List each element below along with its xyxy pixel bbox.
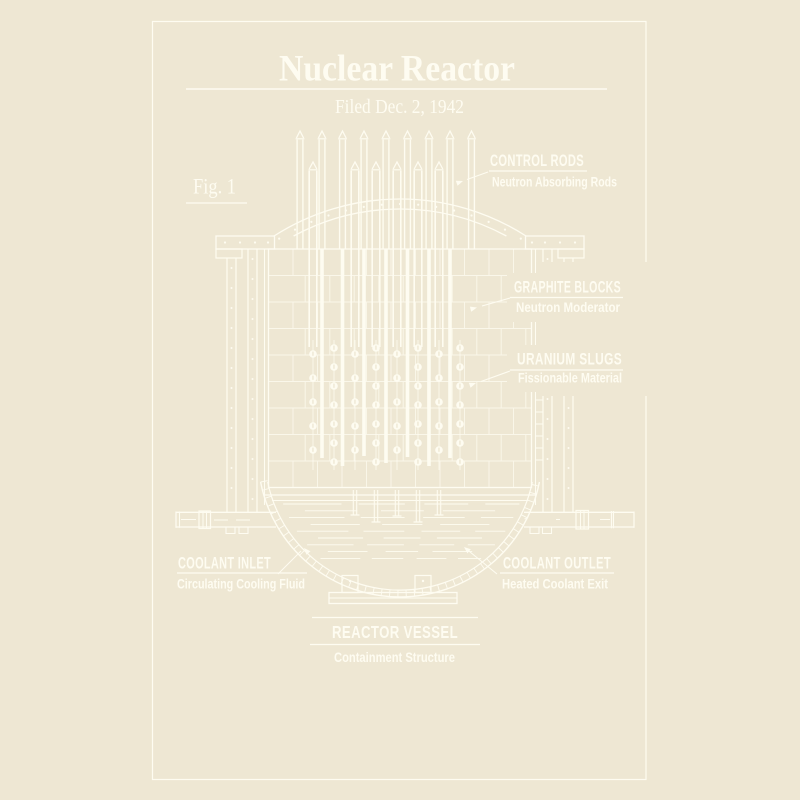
svg-text:URANIUM SLUGS: URANIUM SLUGS	[517, 350, 622, 369]
svg-text:Heated Coolant Exit: Heated Coolant Exit	[502, 576, 608, 592]
svg-text:Fissionable Material: Fissionable Material	[518, 370, 622, 386]
svg-text:COOLANT OUTLET: COOLANT OUTLET	[503, 554, 611, 573]
svg-text:Filed Dec. 2, 1942: Filed Dec. 2, 1942	[335, 96, 464, 118]
svg-text:Neutron Absorbing Rods: Neutron Absorbing Rods	[492, 174, 617, 190]
svg-text:Fig. 1: Fig. 1	[193, 174, 236, 199]
svg-text:GRAPHITE BLOCKS: GRAPHITE BLOCKS	[514, 278, 621, 297]
svg-text:CONTROL RODS: CONTROL RODS	[490, 151, 584, 170]
svg-text:REACTOR VESSEL: REACTOR VESSEL	[332, 622, 458, 642]
svg-text:COOLANT INLET: COOLANT INLET	[178, 554, 271, 573]
svg-text:Neutron Moderator: Neutron Moderator	[516, 299, 620, 315]
svg-text:Containment Structure: Containment Structure	[334, 649, 455, 665]
svg-text:Circulating Cooling Fluid: Circulating Cooling Fluid	[177, 576, 305, 592]
svg-text:Nuclear Reactor: Nuclear Reactor	[279, 49, 515, 90]
